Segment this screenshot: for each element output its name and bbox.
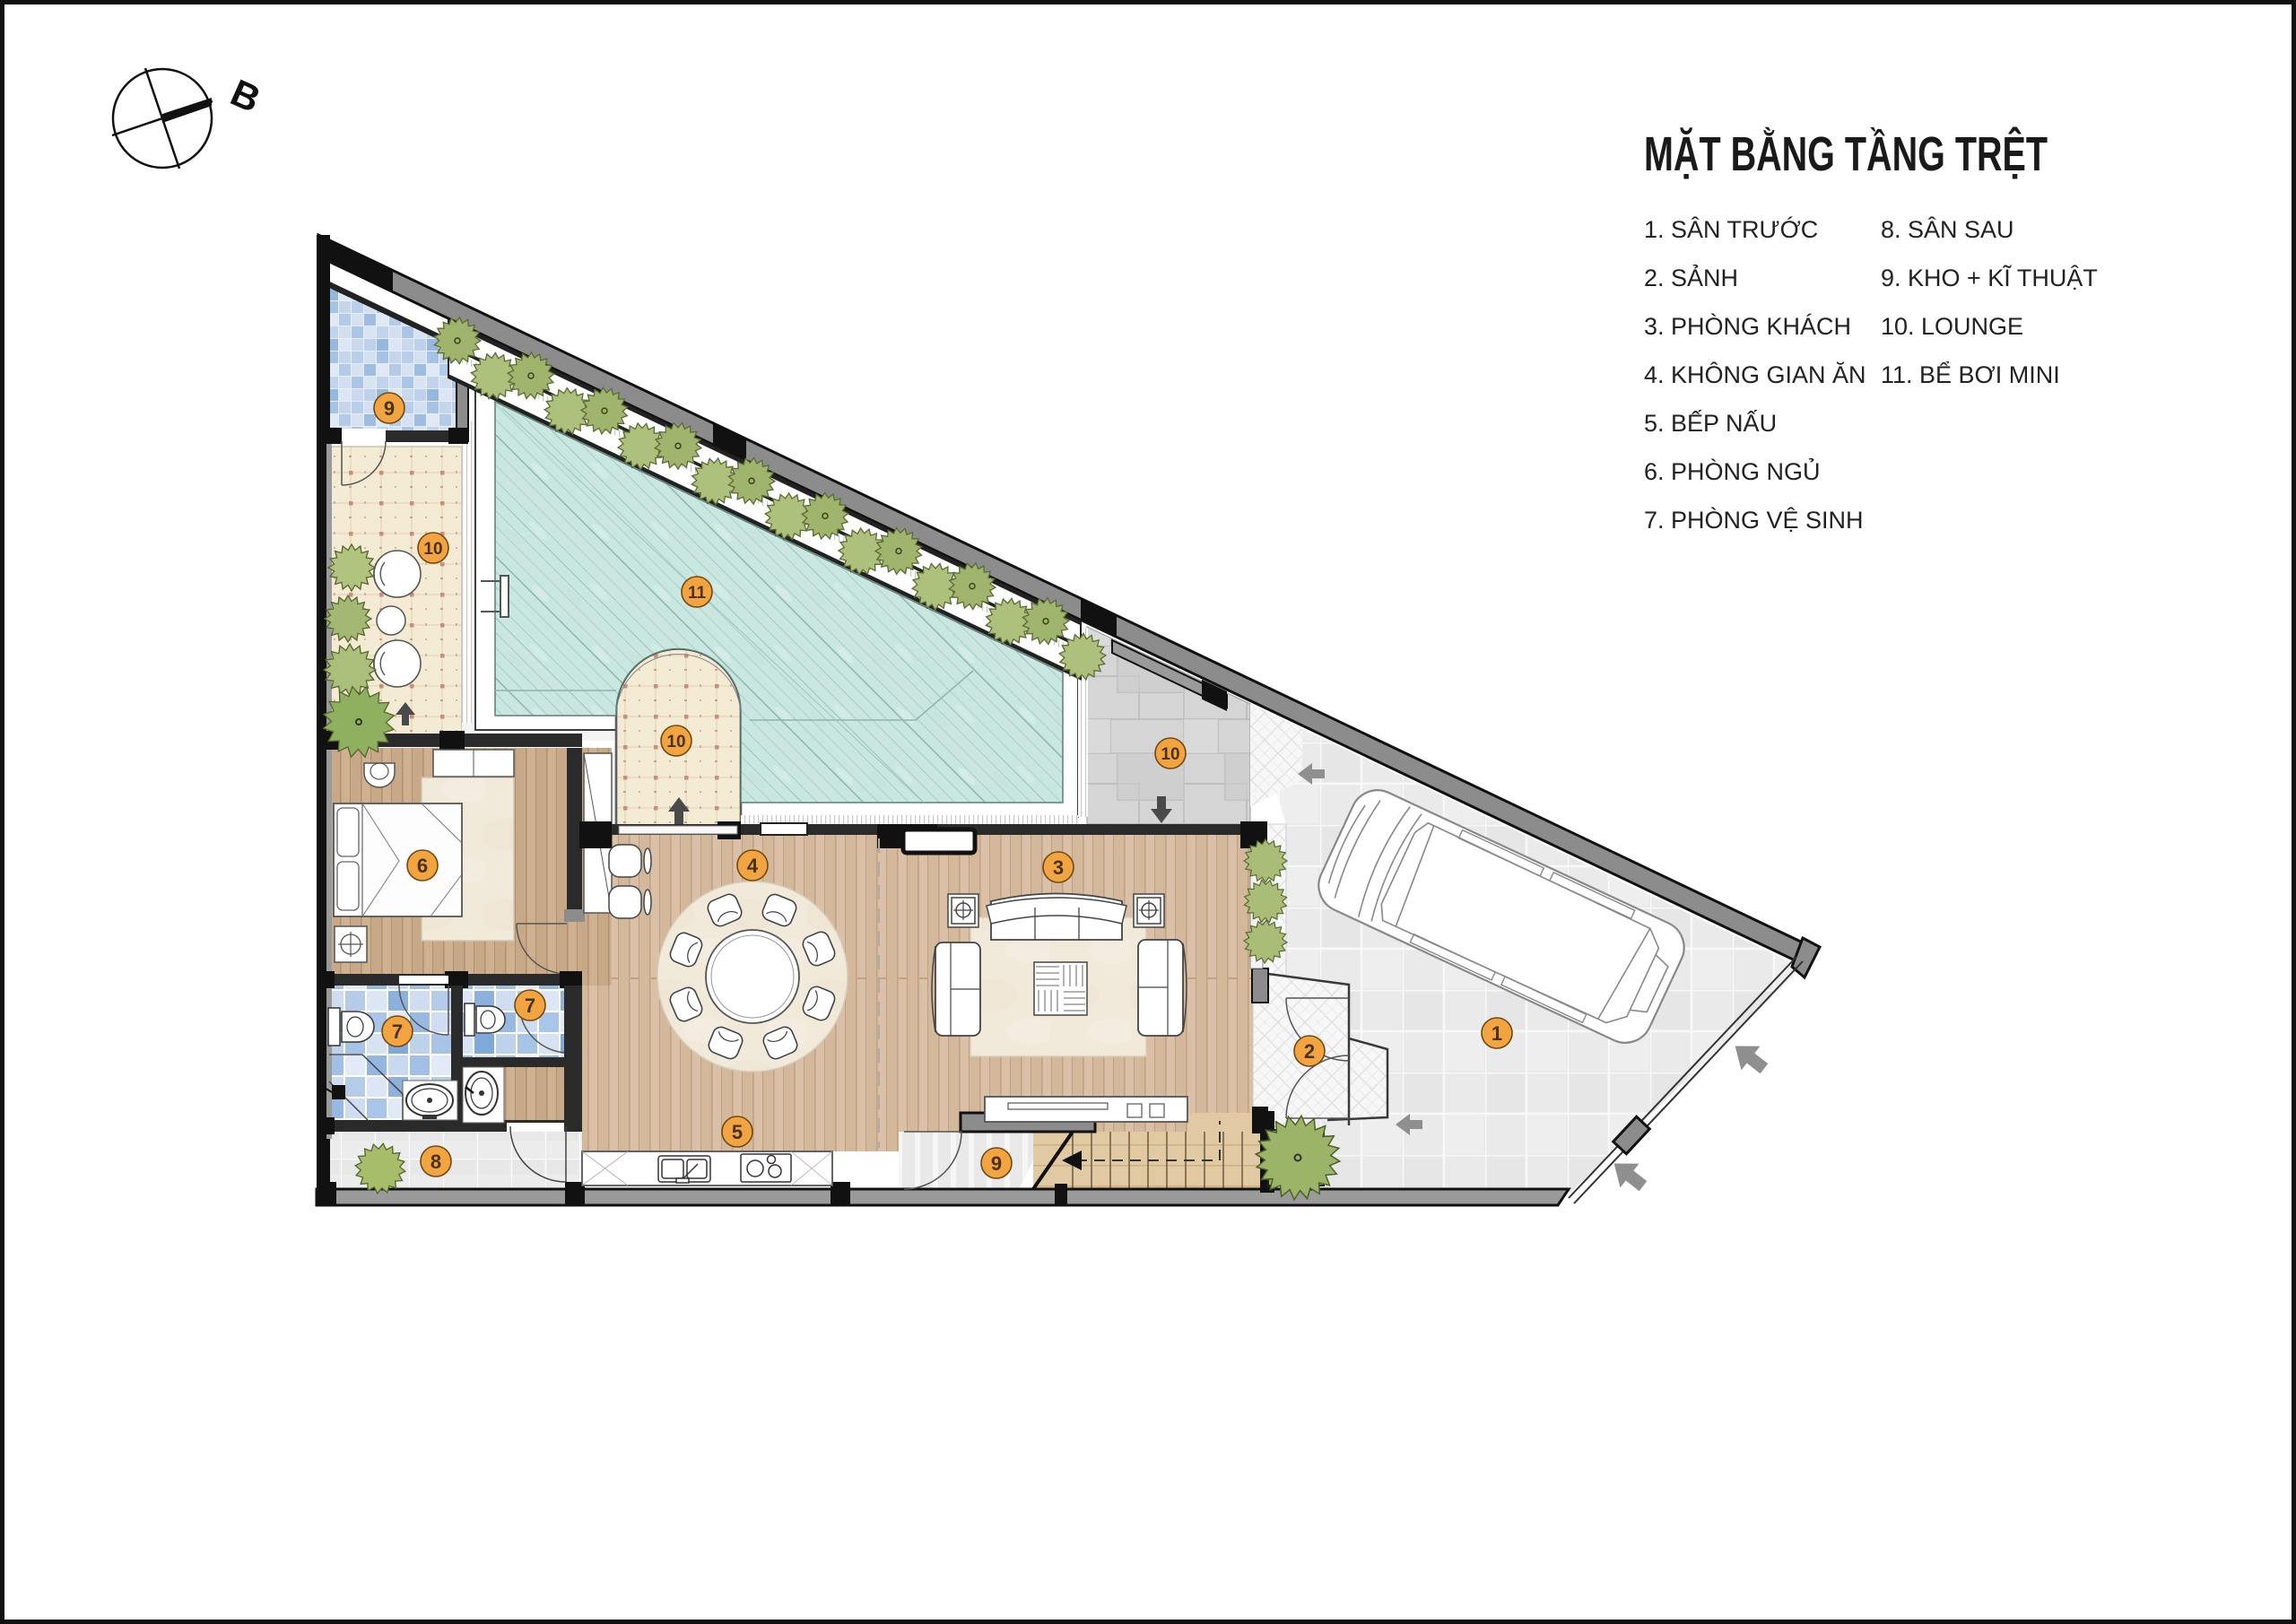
svg-text:8. SÂN SAU: 8. SÂN SAU <box>1881 215 2014 243</box>
svg-text:9. KHO + KĨ THUẬT: 9. KHO + KĨ THUẬT <box>1881 264 2098 291</box>
svg-text:10. LOUNGE: 10. LOUNGE <box>1881 313 2023 340</box>
svg-text:1. SÂN TRƯỚC: 1. SÂN TRƯỚC <box>1644 215 1818 243</box>
svg-text:3: 3 <box>1053 856 1064 879</box>
svg-text:2: 2 <box>1304 1040 1315 1063</box>
svg-text:6. PHÒNG NGỦ: 6. PHÒNG NGỦ <box>1644 456 1821 485</box>
svg-text:6: 6 <box>417 855 428 877</box>
svg-text:11: 11 <box>688 584 707 603</box>
svg-text:9: 9 <box>384 397 395 420</box>
svg-text:2. SẢNH: 2. SẢNH <box>1644 263 1738 291</box>
svg-text:1: 1 <box>1492 1022 1502 1045</box>
svg-text:10: 10 <box>423 540 442 559</box>
svg-text:11. BỂ BƠI MINI: 11. BỂ BƠI MINI <box>1881 360 2060 388</box>
svg-text:4. KHÔNG GIAN ĂN: 4. KHÔNG GIAN ĂN <box>1644 360 1866 388</box>
svg-text:MẶT BẰNG TẦNG TRỆT: MẶT BẰNG TẦNG TRỆT <box>1644 126 2048 181</box>
svg-text:9: 9 <box>991 1152 1002 1175</box>
svg-text:5: 5 <box>732 1121 743 1143</box>
svg-text:7: 7 <box>525 994 535 1017</box>
svg-text:5. BẾP NẤU: 5. BẾP NẤU <box>1644 409 1777 437</box>
svg-text:3. PHÒNG KHÁCH: 3. PHÒNG KHÁCH <box>1644 312 1851 340</box>
svg-text:B: B <box>224 71 266 120</box>
svg-text:10: 10 <box>666 733 685 751</box>
svg-text:7. PHÒNG VỆ SINH: 7. PHÒNG VỆ SINH <box>1644 506 1864 534</box>
svg-text:10: 10 <box>1161 745 1179 764</box>
svg-text:7: 7 <box>392 1020 403 1043</box>
svg-text:8: 8 <box>430 1151 441 1173</box>
svg-text:4: 4 <box>747 855 759 877</box>
